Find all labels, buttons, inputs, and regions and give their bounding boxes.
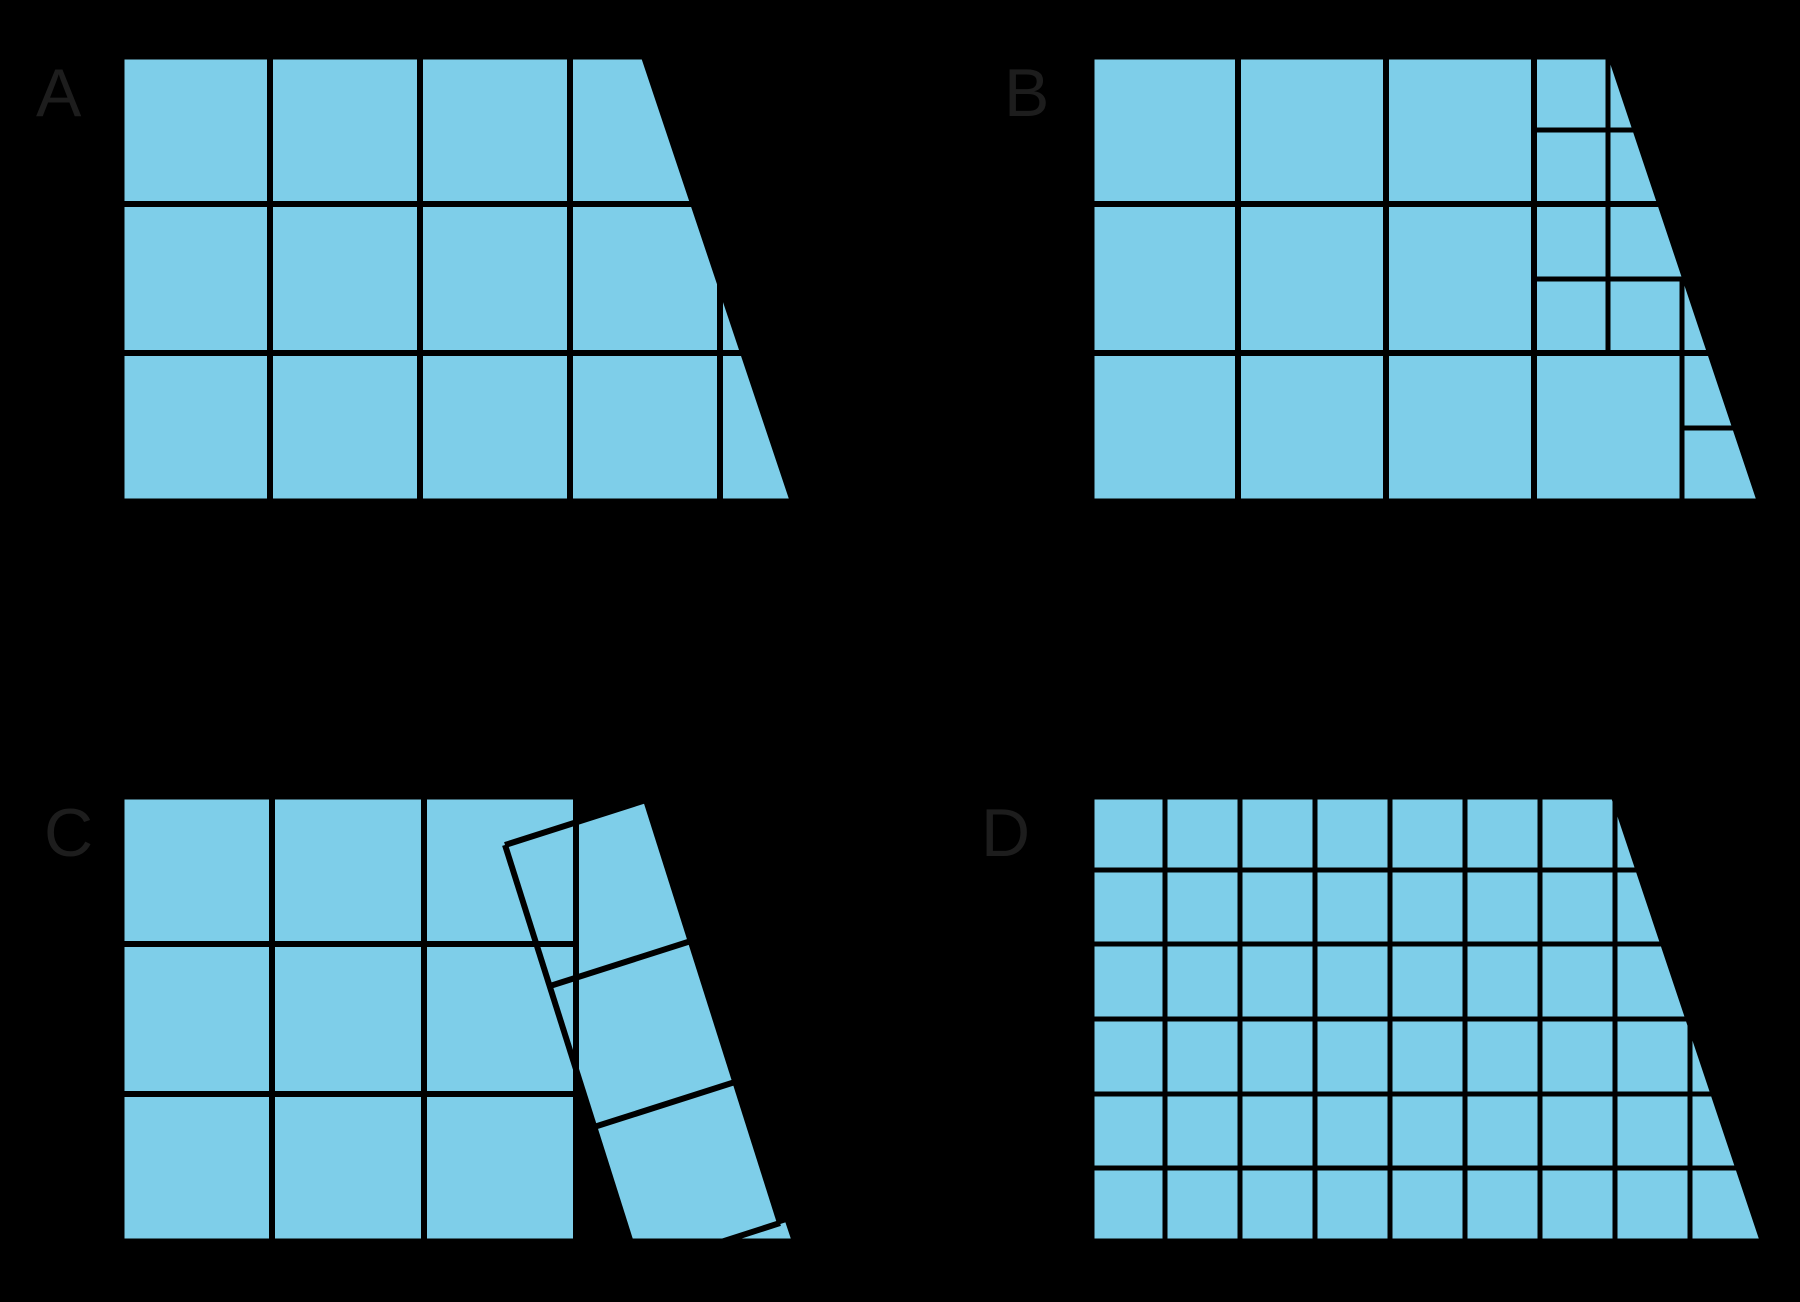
panel-label-c: C [44, 795, 93, 871]
panel-label-d: D [981, 795, 1030, 871]
panel-label-b: B [1004, 55, 1049, 131]
figure-svg: ABCD [0, 0, 1800, 1302]
panel-label-a: A [36, 55, 82, 131]
tiled-trapezoids-figure: ABCD [0, 0, 1800, 1302]
